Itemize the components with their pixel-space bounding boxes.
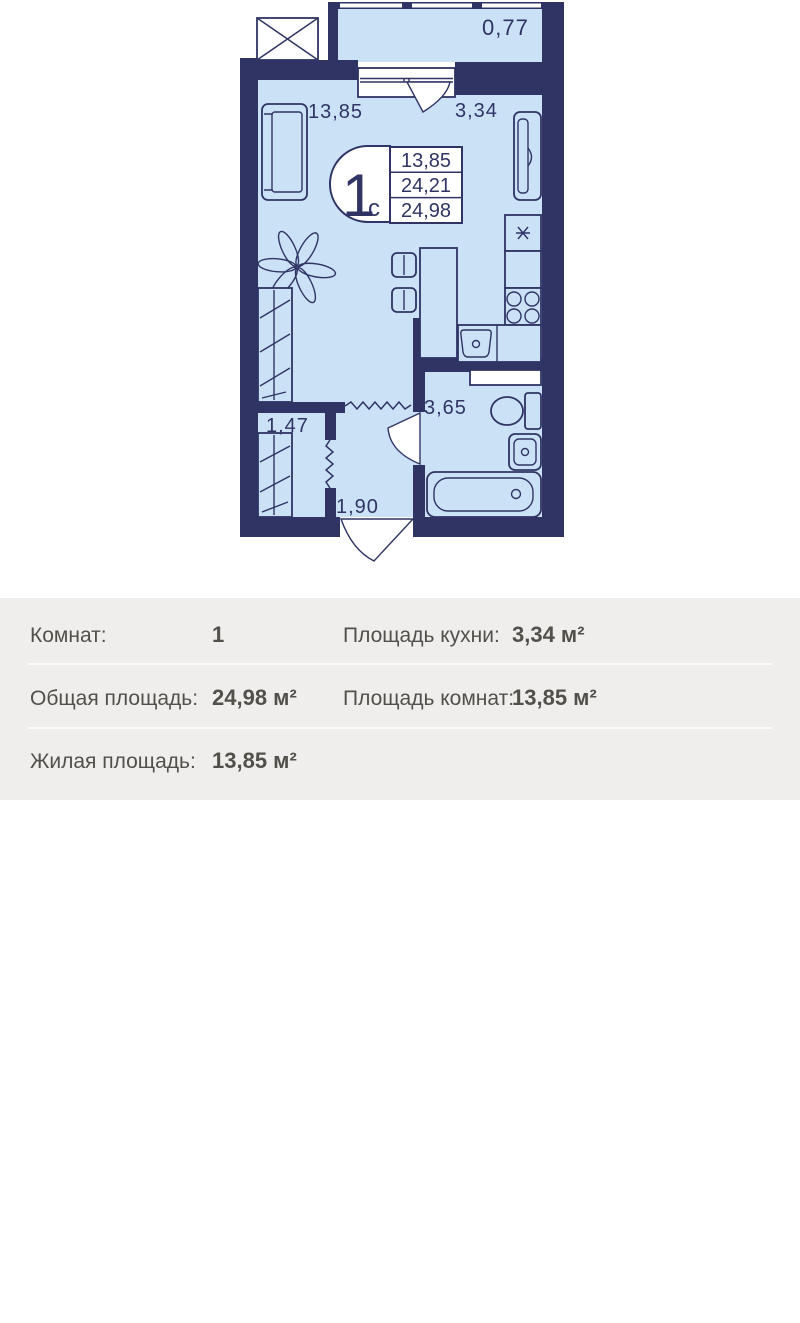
wall-kitchen-bath-lower (413, 465, 425, 517)
rooms-area-row-label: Площадь комнат: (343, 687, 514, 711)
sink-counter-symbol (458, 325, 541, 362)
living-area-label: Жилая площадь: (30, 750, 196, 774)
rooms-label: Комнат: (30, 624, 107, 648)
balcony-window-2 (412, 4, 472, 8)
vent-box (470, 370, 541, 385)
rooms-value: 1 (212, 622, 224, 648)
entrance-door-swing (341, 519, 413, 561)
hall-area-label: 1,90 (336, 496, 379, 518)
separator (28, 663, 772, 665)
toilet-symbol (491, 393, 541, 429)
hob-symbol (505, 288, 541, 325)
watermark-id: 13975368 (556, 1295, 696, 1321)
unit-stamp: 1 с 13,85 24,21 24,98 (330, 146, 462, 229)
counter-cell (505, 251, 541, 288)
floor-plan: 1 с 13,85 24,21 24,98 0,77 13,85 3,34 3,… (0, 0, 800, 598)
watermark-brand: циан (498, 1243, 634, 1295)
balcony-area-label: 0,77 (482, 15, 529, 40)
closet-area-label: 1,47 (266, 415, 309, 437)
bathtub-symbol (427, 472, 541, 517)
tall-cabinet-symbol (514, 112, 541, 200)
stamp-row1: 13,85 (401, 150, 451, 172)
stamp-suffix: с (368, 195, 380, 222)
balcony-window-1 (340, 4, 402, 8)
wall-top-kitchen (455, 62, 542, 95)
stamp-row2: 24,21 (401, 175, 451, 197)
bathroom-area-label: 3,65 (424, 397, 467, 419)
wall-closet-upper (325, 411, 336, 440)
rooms-area-row-value: 13,85 м² (512, 685, 597, 711)
wall-right (542, 2, 564, 537)
total-area-label: Общая площадь: (30, 687, 198, 711)
sofa-symbol (262, 104, 307, 200)
stove-symbol (505, 215, 541, 251)
room-area-label: 13,85 (308, 101, 363, 123)
washbasin-symbol (509, 434, 541, 470)
separator (28, 727, 772, 729)
wall-bottom-right (413, 517, 564, 537)
kitchen-area-row-label: Площадь кухни: (343, 624, 500, 648)
wall-left (240, 58, 258, 537)
balcony-window-3 (482, 4, 541, 8)
floor-plan-drawing: 1 с 13,85 24,21 24,98 0,77 13,85 3,34 3,… (0, 0, 800, 598)
wall-bottom-left (240, 517, 340, 537)
balcony-wall-left (328, 2, 338, 62)
wall-top-left (240, 60, 358, 80)
wall-closet-lower (325, 488, 336, 517)
kitchen-area-row-value: 3,34 м² (512, 622, 585, 648)
kitchen-area-label: 3,34 (455, 100, 498, 122)
info-panel: циан 13975368 Комнат: 1 Общая площадь: 2… (0, 598, 800, 800)
kitchen-island-symbol (420, 248, 457, 358)
living-area-value: 13,85 м² (212, 748, 297, 774)
stamp-row3: 24,98 (401, 200, 451, 222)
floorplan-page: { "colors": { "wall": "#2f3464", "room-f… (0, 0, 800, 800)
wardrobe-upper-symbol (258, 288, 292, 402)
total-area-value: 24,98 м² (212, 685, 297, 711)
wardrobe-lower-symbol (258, 433, 292, 517)
